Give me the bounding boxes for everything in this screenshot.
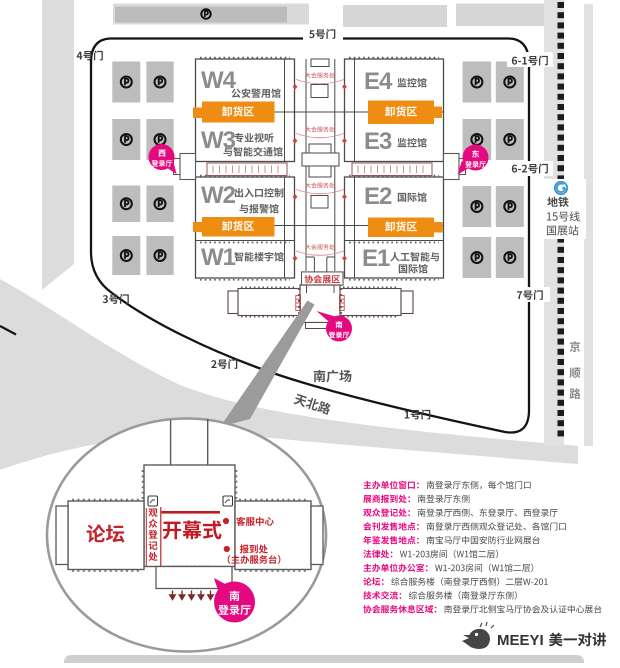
svg-text:W4: W4 bbox=[201, 67, 237, 94]
svg-text:MEEYI: MEEYI bbox=[497, 632, 544, 649]
svg-text:W1: W1 bbox=[201, 244, 236, 271]
svg-text:W3: W3 bbox=[201, 127, 236, 154]
svg-text:W2: W2 bbox=[201, 182, 236, 209]
svg-text:E3: E3 bbox=[364, 128, 392, 155]
svg-text:E4: E4 bbox=[364, 68, 393, 95]
svg-text:E1: E1 bbox=[362, 245, 390, 272]
svg-text:E2: E2 bbox=[364, 183, 392, 210]
